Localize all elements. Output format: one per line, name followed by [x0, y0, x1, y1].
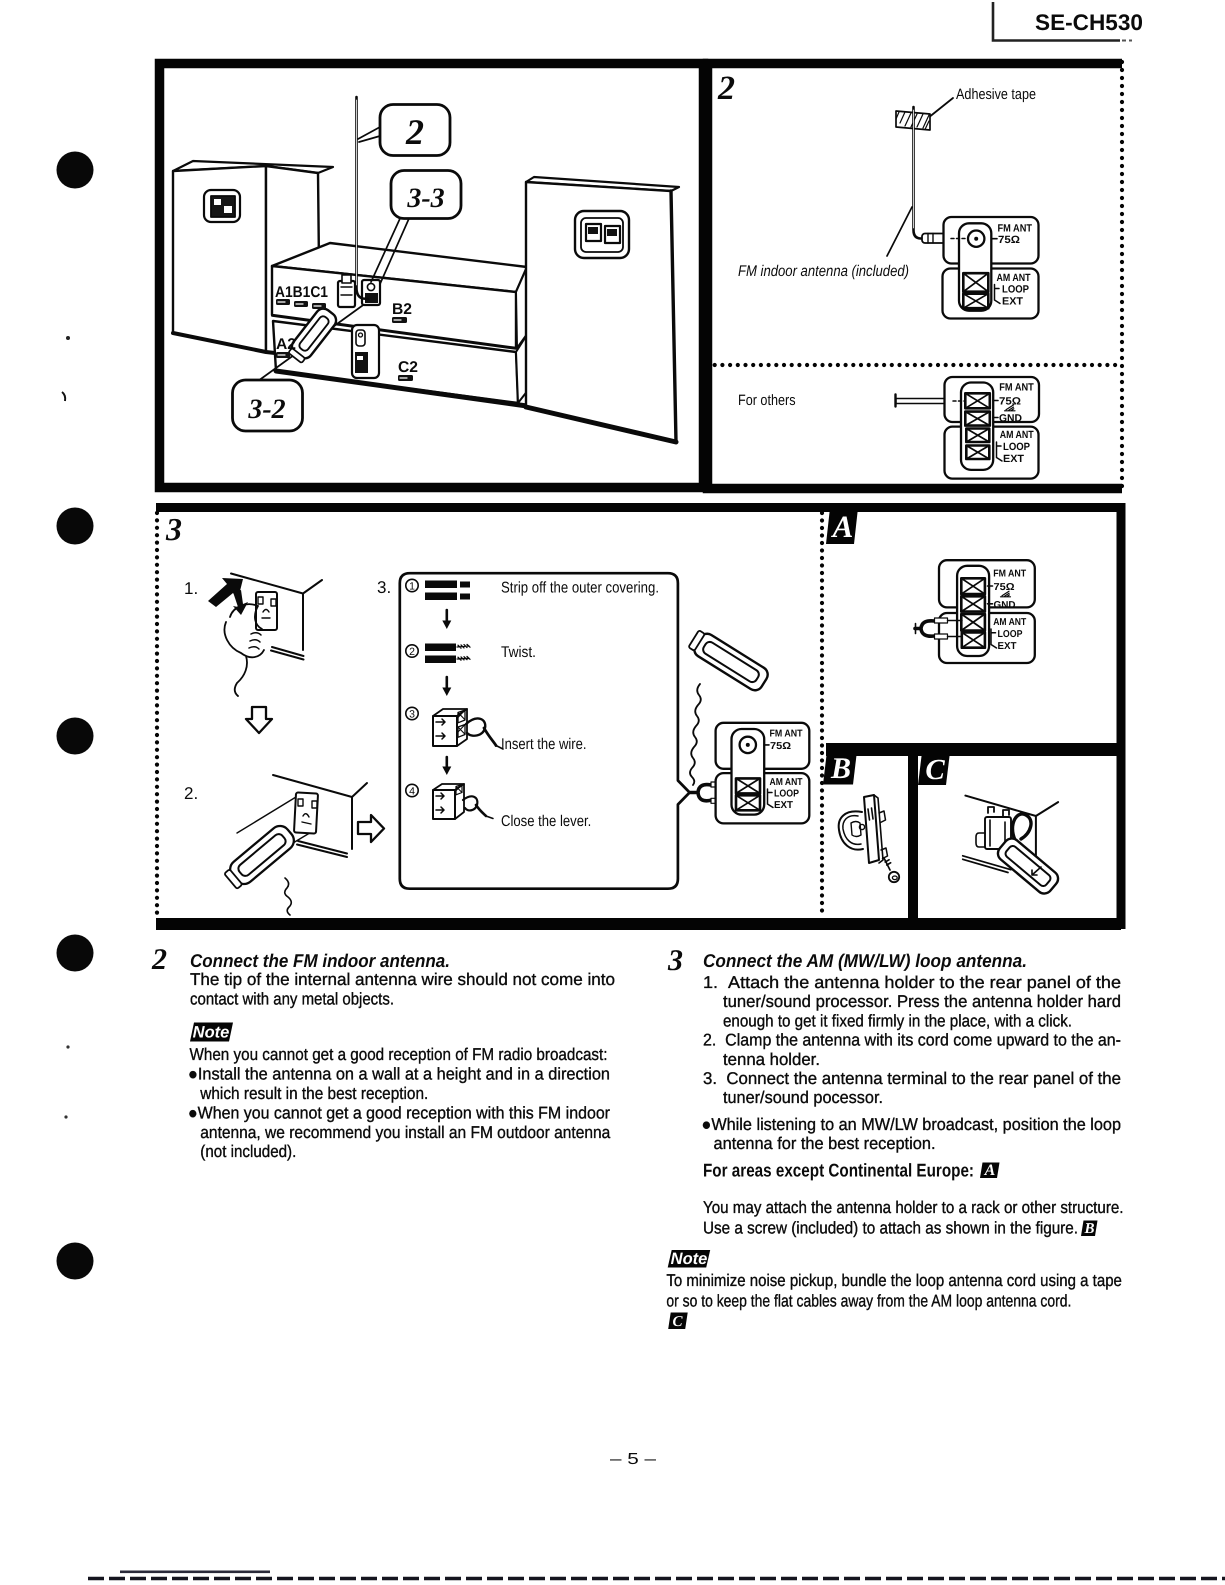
svg-text:AM ANT: AM ANT — [997, 272, 1031, 284]
svg-text:Connect the FM indoor antenna.: Connect the FM indoor antenna. — [190, 950, 450, 971]
svg-text:tuner/sound pocessor.: tuner/sound pocessor. — [723, 1088, 883, 1107]
svg-text:FM ANT: FM ANT — [999, 382, 1034, 394]
svg-text:C: C — [672, 1314, 683, 1330]
svg-text:C: C — [925, 754, 945, 786]
svg-text:tenna holder.: tenna holder. — [723, 1050, 820, 1069]
svg-text:GND: GND — [994, 600, 1016, 611]
svg-text:For others: For others — [738, 392, 796, 409]
svg-text:or so to keep the flat cables: or so to keep the flat cables away from … — [666, 1291, 1071, 1310]
svg-text:3: 3 — [165, 511, 182, 547]
svg-text:– 5 –: – 5 – — [610, 1451, 656, 1468]
svg-text:For areas except Continental E: For areas except Continental Europe: — [703, 1160, 974, 1181]
svg-text:75Ω: 75Ω — [998, 234, 1020, 246]
svg-text:which result in the best recep: which result in the best reception. — [199, 1084, 428, 1103]
svg-text:(not included).: (not included). — [200, 1142, 296, 1161]
svg-text:C2: C2 — [398, 359, 418, 376]
svg-text:3-3: 3-3 — [406, 183, 444, 214]
svg-text:EXT: EXT — [998, 641, 1017, 652]
svg-text:FM indoor antenna (included): FM indoor antenna (included) — [738, 263, 909, 280]
svg-text:tuner/sound processor. Press t: tuner/sound processor. Press the antenna… — [723, 992, 1121, 1011]
svg-text:The tip of the internal antenn: The tip of the internal antenna wire sho… — [190, 970, 615, 989]
svg-text:antenna, we recommend you inst: antenna, we recommend you install an FM … — [200, 1123, 610, 1142]
svg-text:Insert the wire.: Insert the wire. — [501, 736, 587, 753]
svg-text:Note: Note — [193, 1024, 230, 1042]
svg-text:A2: A2 — [276, 336, 296, 353]
svg-text:Close the lever.: Close the lever. — [501, 813, 591, 830]
svg-text:2.: 2. — [184, 784, 198, 803]
svg-text:3-2: 3-2 — [247, 394, 285, 425]
svg-text:EXT: EXT — [774, 800, 793, 811]
svg-text:SE-CH530: SE-CH530 — [1035, 10, 1143, 35]
svg-text:2. Clamp the antenna with its: 2. Clamp the antenna with its cord come … — [703, 1031, 1121, 1050]
svg-text:When you cannot get a good rec: When you cannot get a good reception of … — [190, 1045, 608, 1064]
svg-text:75Ω: 75Ω — [770, 741, 791, 752]
svg-text:Twist.: Twist. — [501, 644, 536, 661]
svg-text:Connect the AM (MW/LW) loop an: Connect the AM (MW/LW) loop antenna. — [703, 950, 1027, 971]
svg-text:AM ANT: AM ANT — [993, 617, 1026, 628]
svg-text:B: B — [830, 752, 851, 785]
svg-text:2: 2 — [717, 70, 735, 107]
svg-text:B2: B2 — [392, 301, 412, 318]
svg-text:AM ANT: AM ANT — [1000, 429, 1034, 441]
svg-text:You may attach the antenna hol: You may attach the antenna holder to a r… — [703, 1198, 1124, 1217]
svg-text:75Ω: 75Ω — [994, 582, 1015, 593]
svg-text:B: B — [1083, 1221, 1094, 1237]
svg-text:2: 2 — [151, 943, 167, 976]
svg-text:3. Connect the antenna termin: 3. Connect the antenna terminal to the r… — [703, 1069, 1121, 1088]
svg-text:FM ANT: FM ANT — [998, 223, 1033, 235]
svg-text:1.: 1. — [184, 579, 198, 598]
svg-text:FM ANT: FM ANT — [770, 729, 803, 740]
svg-text:AM ANT: AM ANT — [770, 777, 803, 788]
svg-text:Adhesive tape: Adhesive tape — [956, 86, 1036, 103]
svg-text:To minimize noise pickup, bund: To minimize noise pickup, bundle the loo… — [666, 1271, 1122, 1290]
svg-text:LOOP: LOOP — [1002, 284, 1029, 296]
svg-text:2: 2 — [409, 646, 415, 658]
svg-text:EXT: EXT — [1003, 453, 1025, 465]
svg-text:LOOP: LOOP — [774, 789, 799, 800]
svg-text:EXT: EXT — [1002, 296, 1024, 308]
svg-text:3: 3 — [667, 944, 683, 977]
svg-text:Strip off the outer covering.: Strip off the outer covering. — [501, 580, 659, 597]
svg-text:3: 3 — [409, 709, 415, 721]
svg-text:Use a screw (included) to atta: Use a screw (included) to attach as show… — [703, 1218, 1078, 1237]
svg-text:4: 4 — [409, 786, 415, 798]
svg-text:LOOP: LOOP — [1003, 441, 1030, 453]
svg-text:●Install the antenna on a wall: ●Install the antenna on a wall at a heig… — [188, 1065, 610, 1084]
svg-text:1: 1 — [409, 581, 415, 593]
svg-text:A1B1C1: A1B1C1 — [275, 284, 328, 301]
svg-text:●While listening to an MW/LW b: ●While listening to an MW/LW broadcast, … — [702, 1115, 1122, 1134]
svg-text:75Ω: 75Ω — [999, 396, 1021, 408]
svg-text:contact with any metal objects: contact with any metal objects. — [190, 989, 394, 1008]
svg-text:antenna for the best reception: antenna for the best reception. — [714, 1134, 936, 1153]
svg-text:GND: GND — [999, 413, 1022, 425]
svg-text:FM ANT: FM ANT — [993, 569, 1026, 580]
svg-text:2: 2 — [405, 112, 424, 152]
svg-text:1. Attach the antenna holder: 1. Attach the antenna holder to the rear… — [703, 973, 1121, 992]
svg-text:A: A — [831, 509, 854, 544]
svg-text:Note: Note — [671, 1250, 708, 1268]
svg-text:LOOP: LOOP — [998, 629, 1023, 640]
svg-text:enough to get it fixed firmly: enough to get it fixed firmly in the pla… — [723, 1011, 1072, 1030]
svg-text:3.: 3. — [377, 578, 391, 597]
svg-text:●When you cannot get a good re: ●When you cannot get a good reception wi… — [188, 1103, 610, 1122]
svg-text:A: A — [984, 1162, 996, 1179]
